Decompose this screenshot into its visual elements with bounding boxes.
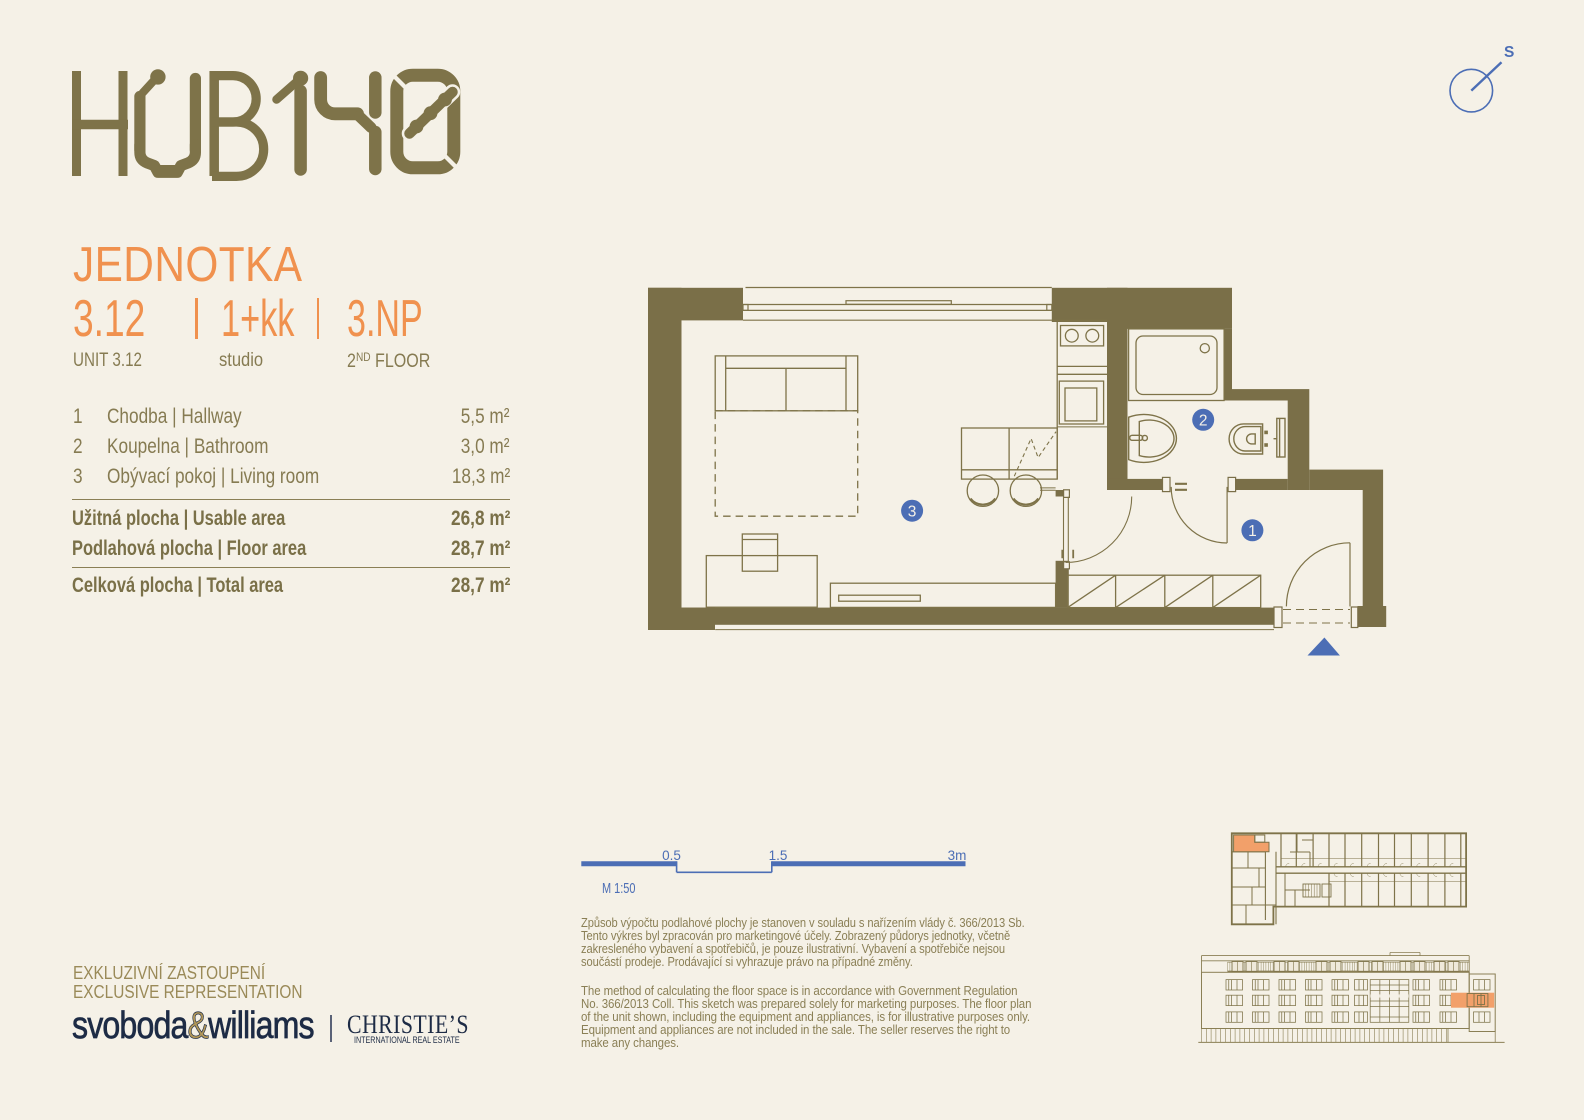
svg-text:3m: 3m (948, 848, 967, 863)
svg-text:0.5: 0.5 (662, 848, 681, 863)
svg-text:S: S (1504, 44, 1514, 61)
svg-text:2: 2 (1199, 412, 1208, 429)
svg-text:3: 3 (908, 503, 917, 520)
svg-text:1: 1 (1248, 523, 1257, 540)
svg-text:1.5: 1.5 (769, 848, 788, 863)
